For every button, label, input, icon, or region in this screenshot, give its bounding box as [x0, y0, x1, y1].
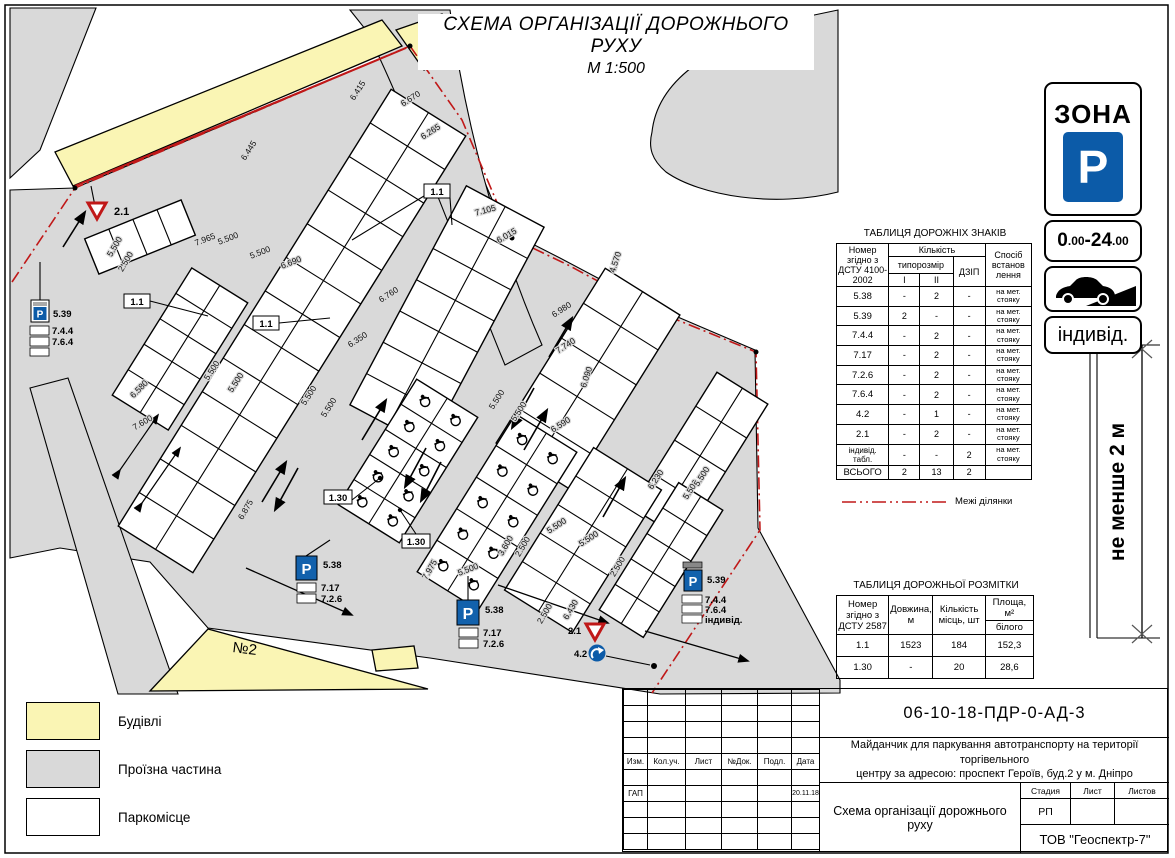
sheet-value — [1071, 799, 1115, 824]
scheme-title: Схема організації дорожнього руху — [820, 783, 1021, 853]
sign-label: індивід. — [705, 615, 742, 626]
cell: - — [953, 405, 985, 425]
col-header-number: Номер згідно з ДСТУ 2587 — [837, 596, 889, 635]
col-header-number: Номер згідно з ДСТУ 4100-2002 — [837, 244, 889, 287]
legend-item-roadway: Проїзна частина — [26, 750, 286, 788]
cell: на мет. стояку — [985, 306, 1031, 326]
p-icon: P — [301, 561, 311, 578]
cell: 7.2.6 — [837, 365, 889, 385]
table-row: 7.17-2-на мет. стояку — [837, 346, 1032, 366]
cell: - — [889, 405, 920, 425]
sign-label: 2.1 — [114, 206, 129, 218]
cell: на мет. стояку — [985, 326, 1031, 346]
time-text: .00 — [1112, 234, 1129, 248]
cell: на мет. стояку — [985, 385, 1031, 405]
boundary-legend-label: Межі ділянки — [955, 496, 1012, 507]
cell: 7.4.4 — [837, 326, 889, 346]
cell: 1.1 — [837, 635, 889, 657]
cell: - — [889, 365, 920, 385]
cell: на мет. стояку — [985, 444, 1031, 465]
boundary-legend: Межі ділянки — [842, 496, 1032, 507]
sheets-value — [1115, 799, 1169, 824]
sheets-label: Листов — [1115, 783, 1169, 798]
col-data: Дата — [792, 754, 820, 770]
cell: - — [889, 346, 920, 366]
legend-label: Паркомісце — [118, 810, 190, 825]
sign-label: 4.2 — [574, 649, 587, 660]
cell: 2 — [920, 365, 953, 385]
parking-p-icon: P — [1063, 132, 1123, 202]
cell — [985, 465, 1031, 479]
car-icon — [1048, 268, 1138, 310]
cell: - — [953, 287, 985, 307]
col-header-area: Площа, м² — [985, 596, 1033, 621]
time-text: 0 — [1057, 230, 1068, 252]
drawing-sheet: №2 — [0, 0, 1175, 858]
cell: 2 — [920, 346, 953, 366]
cell: 2 — [889, 306, 920, 326]
col-header-qty: Кількість — [889, 244, 985, 257]
dim-label: 4.570 — [607, 250, 623, 274]
zone-parking-sign: ЗОНА P 0.00-24.00 індивід. — [1044, 82, 1142, 358]
table-row: 1.11523184152,3 — [837, 635, 1034, 657]
cell: - — [889, 385, 920, 405]
sign-label: 7.17 — [483, 628, 502, 639]
stage-value: РП — [1021, 799, 1071, 824]
legend-item-parking: Паркомісце — [26, 798, 286, 836]
cell: 20 — [933, 657, 985, 679]
map-legend: Будівлі Проїзна частина Паркомісце — [26, 702, 286, 846]
cell: - — [953, 326, 985, 346]
markings-table-title: ТАБЛИЦЯ ДОРОЖНЬОЇ РОЗМІТКИ — [836, 580, 1036, 591]
col-header-ii: II — [920, 274, 953, 287]
building-no2-annex — [372, 646, 418, 671]
buildings-swatch — [26, 702, 100, 740]
cell: на мет. стояку — [985, 287, 1031, 307]
cell: 2 — [889, 465, 920, 479]
cell: індивід. табл. — [837, 444, 889, 465]
sheet-label: Лист — [1071, 783, 1115, 798]
cell: 152,3 — [985, 635, 1033, 657]
cell: 2 — [953, 444, 985, 465]
signs-table-title: ТАБЛИЦЯ ДОРОЖНІХ ЗНАКІВ — [836, 228, 1034, 239]
cell: 1 — [920, 405, 953, 425]
marking-label-1-1: 1.1 — [430, 187, 444, 198]
cell: - — [953, 306, 985, 326]
sign-label: 5.38 — [485, 605, 504, 616]
gap-cell: ГАП — [624, 786, 648, 802]
col-header-i: I — [889, 274, 920, 287]
sign-label: 7.2.6 — [321, 594, 342, 605]
parking-swatch — [26, 798, 100, 836]
title-line2: М 1:500 — [418, 60, 814, 78]
time-text: -24 — [1085, 230, 1112, 252]
drawing-title: СХЕМА ОРГАНІЗАЦІЇ ДОРОЖНЬОГО РУХУ М 1:50… — [418, 14, 814, 70]
zone-sign-individ-plate: індивід. — [1044, 316, 1142, 354]
table-row: 5.392--на мет. стояку — [837, 306, 1032, 326]
cell: - — [889, 287, 920, 307]
cell: 1523 — [889, 635, 933, 657]
legend-label: Проїзна частина — [118, 762, 221, 777]
col-header-dzip: ДЗІП — [953, 257, 985, 287]
cell: 4.2 — [837, 405, 889, 425]
cell: - — [953, 424, 985, 444]
sign-label: 5.39 — [707, 575, 726, 586]
min-distance-label: не менше 2 м — [1106, 423, 1129, 561]
description-line2: центру за адресою: проспект Героїв, буд.… — [856, 767, 1133, 782]
zone-sign-time-plate: 0.00-24.00 — [1044, 220, 1142, 262]
individ-text: індивід. — [1058, 324, 1129, 347]
cell: 13 — [920, 465, 953, 479]
stage-values: РП — [1021, 799, 1169, 825]
marking-label-1-30: 1.30 — [407, 537, 426, 548]
sign-label: 7.17 — [321, 583, 340, 594]
time-text: .00 — [1068, 234, 1085, 248]
cell: - — [920, 444, 953, 465]
sign-label: 7.6.4 — [52, 337, 74, 348]
sign-label: 5.39 — [53, 309, 72, 320]
cell: - — [889, 424, 920, 444]
p-icon: P — [463, 606, 474, 623]
cell: 2 — [920, 287, 953, 307]
boundary-line-sample — [842, 498, 947, 506]
col-izm: Изм. — [624, 754, 648, 770]
cell: 5.39 — [837, 306, 889, 326]
title-block-main: 06-10-18-ПДР-0-АД-3 Майданчик для паркув… — [819, 689, 1169, 851]
roadway-swatch — [26, 750, 100, 788]
sign-label: 2.1 — [568, 626, 582, 637]
cell: - — [953, 365, 985, 385]
cell: 2 — [920, 326, 953, 346]
cell: 184 — [933, 635, 985, 657]
cell: ВСЬОГО — [837, 465, 889, 479]
cell: на мет. стояку — [985, 405, 1031, 425]
cell: 2.1 — [837, 424, 889, 444]
company-name: ТОВ "Геоспектр-7" — [1021, 825, 1169, 853]
cell: 2 — [920, 385, 953, 405]
cell: на мет. стояку — [985, 365, 1031, 385]
marking-label-1-1: 1.1 — [259, 319, 273, 330]
p-icon: P — [37, 310, 44, 321]
col-list: Лист — [686, 754, 722, 770]
cell: - — [953, 385, 985, 405]
col-ndok: №Док. — [722, 754, 758, 770]
doc-number: 06-10-18-ПДР-0-АД-3 — [820, 689, 1169, 738]
building-no2-label: №2 — [232, 639, 258, 659]
project-description: Майданчик для паркування автотранспорту … — [820, 738, 1169, 783]
road-markings-table: ТАБЛИЦЯ ДОРОЖНЬОЇ РОЗМІТКИ Номер згідно … — [836, 580, 1036, 679]
table-row: 5.38-2-на мет. стояку — [837, 287, 1032, 307]
title-block: Изм. Кол.уч. Лист №Док. Подл. Дата ГАП 2… — [622, 688, 1168, 852]
col-header-qty: Кількість місць, шт — [933, 596, 985, 635]
col-header-size: типорозмір — [889, 257, 953, 274]
zone-sign-main-plate: ЗОНА P — [1044, 82, 1142, 216]
p-icon: P — [689, 574, 698, 589]
cell: 5.38 — [837, 287, 889, 307]
date-cell: 20.11.18 — [792, 786, 820, 802]
zone-word: ЗОНА — [1054, 101, 1132, 127]
min-distance-dimension: не менше 2 м — [1082, 340, 1160, 643]
table-row: 7.2.6-2-на мет. стояку — [837, 365, 1032, 385]
stage-label: Стадия — [1021, 783, 1071, 798]
cell: на мет. стояку — [985, 424, 1031, 444]
zone-sign-vehicle-plate — [1044, 266, 1142, 312]
table-row: 2.1-2-на мет. стояку — [837, 424, 1032, 444]
table-row: індивід. табл.--2на мет. стояку — [837, 444, 1032, 465]
cell: на мет. стояку — [985, 346, 1031, 366]
col-koluch: Кол.уч. — [648, 754, 686, 770]
marking-label-1-30: 1.30 — [329, 493, 348, 504]
cell: 1.30 — [837, 657, 889, 679]
cell: - — [953, 346, 985, 366]
col-podp: Подл. — [758, 754, 792, 770]
col-header-area-sub: білого — [985, 621, 1033, 635]
sign-label: 7.4.4 — [52, 326, 74, 337]
sign-label: 5.38 — [323, 560, 342, 571]
cell: - — [889, 657, 933, 679]
table-row: 4.2-1-на мет. стояку — [837, 405, 1032, 425]
table-row: 7.4.4-2-на мет. стояку — [837, 326, 1032, 346]
marking-label-1-1: 1.1 — [130, 297, 144, 308]
cell: - — [920, 306, 953, 326]
stage-header: Стадия Лист Листов — [1021, 783, 1169, 799]
table-row: 1.30-2028,6 — [837, 657, 1034, 679]
legend-item-buildings: Будівлі — [26, 702, 286, 740]
cell: 7.17 — [837, 346, 889, 366]
table-row: 7.6.4-2-на мет. стояку — [837, 385, 1032, 405]
cell: 28,6 — [985, 657, 1033, 679]
table-row: ВСЬОГО2132 — [837, 465, 1032, 479]
legend-label: Будівлі — [118, 714, 161, 729]
title-block-signatures: Изм. Кол.уч. Лист №Док. Подл. Дата ГАП 2… — [623, 689, 819, 851]
cell: 7.6.4 — [837, 385, 889, 405]
cell: - — [889, 326, 920, 346]
title-line1: СХЕМА ОРГАНІЗАЦІЇ ДОРОЖНЬОГО РУХУ — [418, 14, 814, 58]
col-header-method: Спосіб встанов лення — [985, 244, 1031, 287]
road-signs-table: ТАБЛИЦЯ ДОРОЖНІХ ЗНАКІВ Номер згідно з Д… — [836, 228, 1034, 480]
cell: - — [889, 444, 920, 465]
p-letter: P — [1078, 144, 1109, 190]
col-header-length: Довжина, м — [889, 596, 933, 635]
sign-label: 7.2.6 — [483, 639, 504, 650]
cell: 2 — [920, 424, 953, 444]
cell: 2 — [953, 465, 985, 479]
description-line1: Майданчик для паркування автотранспорту … — [820, 738, 1169, 768]
